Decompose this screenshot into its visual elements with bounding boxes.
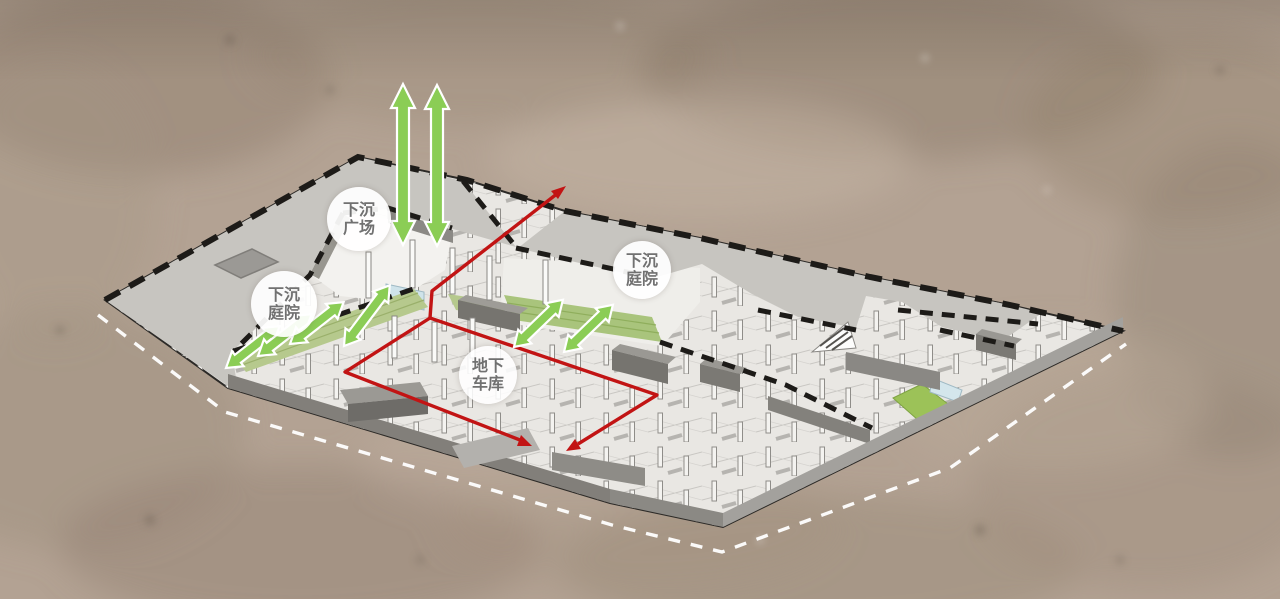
label-sunken-courtyard-left: 下沉 庭院 bbox=[251, 271, 317, 337]
label-underground-garage: 地下 车库 bbox=[459, 346, 517, 404]
label-underground-garage-line2: 车库 bbox=[472, 375, 504, 393]
label-sunken-plaza-line1: 下沉 bbox=[343, 201, 375, 219]
label-sunken-courtyard-right-line1: 下沉 bbox=[626, 252, 658, 270]
label-sunken-courtyard-right-line2: 庭院 bbox=[626, 270, 658, 288]
diagram-stage: 下沉 广场 下沉 庭院 下沉 庭院 地下 车库 bbox=[0, 0, 1280, 599]
label-sunken-courtyard-left-line2: 庭院 bbox=[268, 304, 300, 322]
label-sunken-courtyard-left-line1: 下沉 bbox=[268, 286, 300, 304]
label-underground-garage-line1: 地下 bbox=[472, 357, 504, 375]
label-sunken-plaza-line2: 广场 bbox=[343, 219, 375, 237]
label-sunken-courtyard-right: 下沉 庭院 bbox=[613, 241, 671, 299]
label-sunken-plaza: 下沉 广场 bbox=[327, 187, 391, 251]
axonometric-diagram-canvas bbox=[0, 0, 1280, 599]
